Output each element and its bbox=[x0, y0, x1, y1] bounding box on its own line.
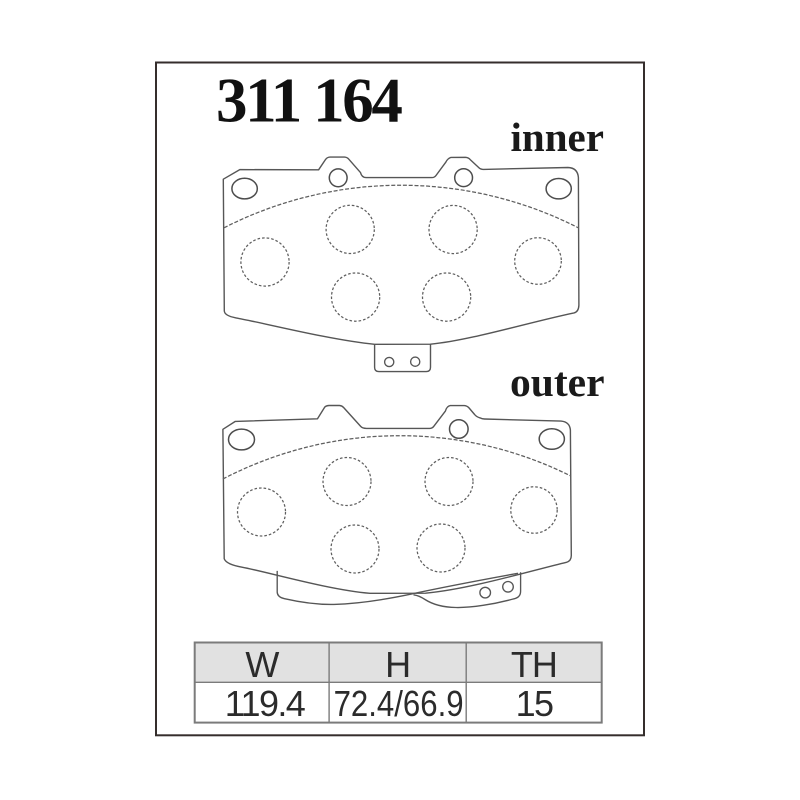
svg-text:TH: TH bbox=[511, 644, 557, 685]
svg-text:15: 15 bbox=[516, 683, 553, 724]
svg-text:inner: inner bbox=[511, 114, 604, 160]
svg-text:H: H bbox=[385, 644, 410, 685]
svg-text:119.4: 119.4 bbox=[225, 683, 305, 724]
svg-text:72.4/66.9: 72.4/66.9 bbox=[334, 683, 464, 724]
svg-text:outer: outer bbox=[510, 359, 605, 405]
svg-text:W: W bbox=[245, 644, 279, 685]
svg-text:311 164: 311 164 bbox=[216, 66, 402, 136]
